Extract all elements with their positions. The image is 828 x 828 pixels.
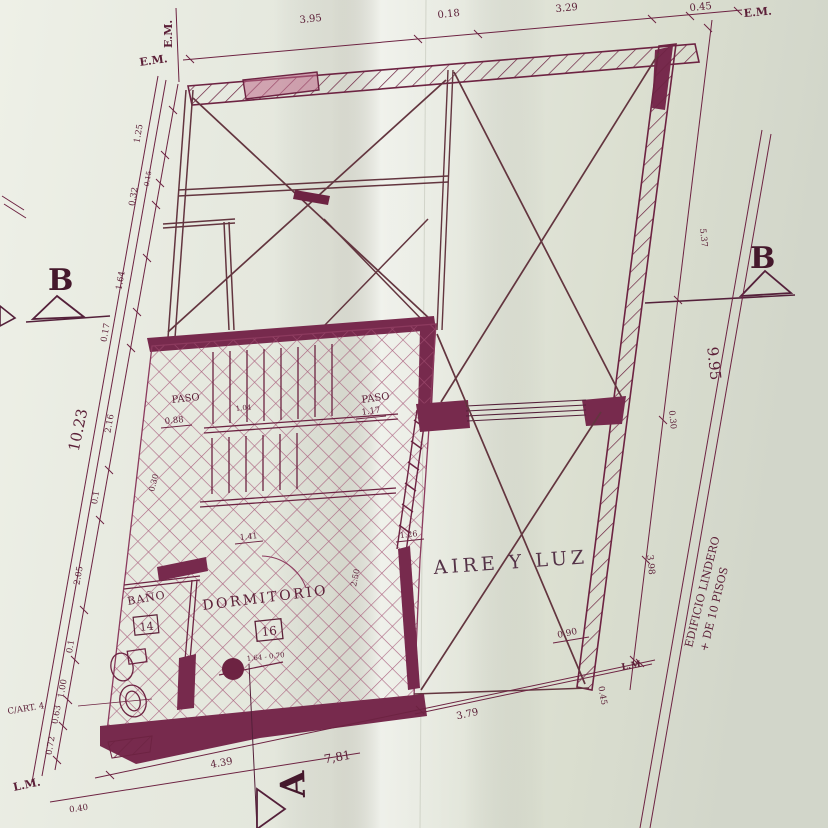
dim-top-3: 3.29 xyxy=(555,2,578,15)
dim-stair: 1.04 xyxy=(235,403,252,413)
dim-top-1: 3.95 xyxy=(299,13,322,26)
room-paso-left-dim: 0.88 xyxy=(164,415,184,427)
room-bano-number: 14 xyxy=(139,620,154,634)
em-label-top-right: E.M. xyxy=(743,5,772,20)
dim-right-4: 3.98 xyxy=(644,554,656,575)
scanned-floor-plan: 3.95 0.18 3.29 0.45 E.M. E.M. E.M. xyxy=(0,0,828,828)
dim-right-3: 0.30 xyxy=(666,410,678,430)
dim-top-2: 0.18 xyxy=(437,8,460,21)
section-a-letter: A xyxy=(273,770,314,799)
em-label-top-left-vertical: E.M. xyxy=(162,20,175,48)
room-dormitorio-number: 16 xyxy=(261,623,278,639)
section-b-right-letter: B xyxy=(750,241,775,276)
dim-right-1: 5.37 xyxy=(697,228,709,248)
lattice-floor xyxy=(106,324,436,740)
dim-141: 1.41 xyxy=(239,531,258,542)
floor-plan-drawing: 3.95 0.18 3.29 0.45 E.M. E.M. E.M. xyxy=(0,0,828,828)
dim-top-4: 0.45 xyxy=(689,1,712,14)
door-pivot xyxy=(222,658,244,680)
section-b-left-letter: B xyxy=(48,263,73,298)
